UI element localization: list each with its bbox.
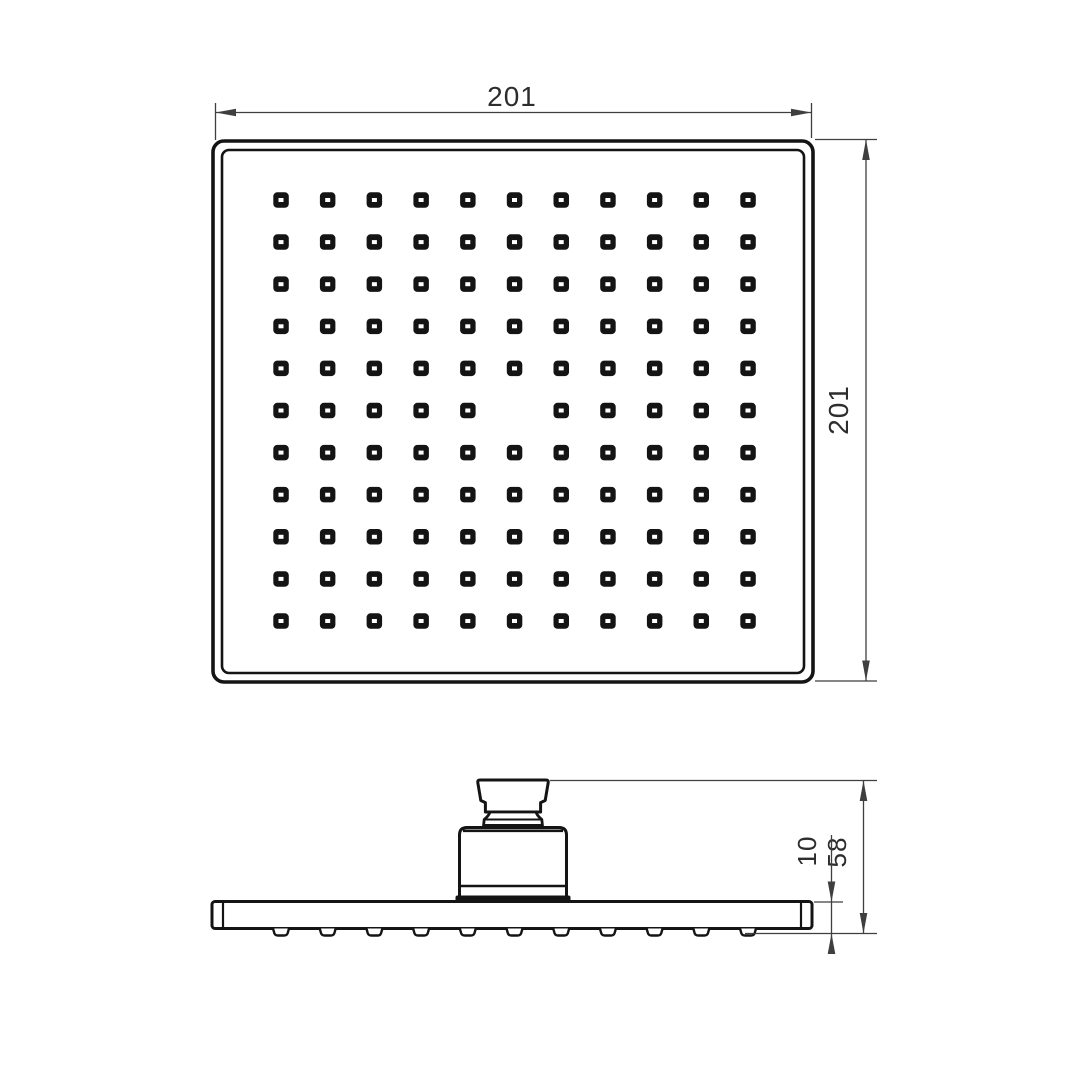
nozzle-hole	[559, 619, 564, 623]
nozzle-hole	[699, 409, 704, 413]
nozzle-hole	[559, 409, 564, 413]
nozzle-hole	[746, 577, 751, 581]
nozzle-hole	[559, 535, 564, 539]
arrowhead-left-icon	[216, 109, 237, 117]
nozzle-hole	[465, 409, 470, 413]
nozzle-hole	[325, 366, 330, 370]
nozzle-hole	[465, 535, 470, 539]
nozzle-hole	[699, 619, 704, 623]
nozzle-hole	[652, 198, 657, 202]
width-dimension-label: 201	[487, 81, 537, 112]
nozzle-hole	[372, 535, 377, 539]
nozzle-hole	[465, 366, 470, 370]
nozzle-hole	[652, 409, 657, 413]
top-view: 201 201	[213, 81, 877, 682]
nozzle-hole	[746, 409, 751, 413]
nozzle-hole	[325, 198, 330, 202]
technical-drawing-canvas: 201 201	[0, 0, 1066, 1066]
nozzle-hole	[325, 240, 330, 244]
nozzle-hole	[559, 282, 564, 286]
nozzle-hole	[419, 451, 424, 455]
nozzle-hole	[605, 619, 610, 623]
nozzle-hole	[652, 493, 657, 497]
nozzle-hole	[699, 535, 704, 539]
nozzle-hole	[419, 493, 424, 497]
spray-bump	[600, 929, 616, 936]
nozzle-hole	[512, 240, 517, 244]
nozzle-hole	[372, 451, 377, 455]
nozzle-hole	[465, 493, 470, 497]
arrowhead-up-icon	[828, 934, 836, 955]
nozzle-hole	[605, 409, 610, 413]
spray-bump	[647, 929, 663, 936]
nozzle-hole	[652, 282, 657, 286]
spray-bump	[366, 929, 382, 936]
arrowhead-right-icon	[791, 109, 812, 117]
spray-bump	[553, 929, 569, 936]
nozzle-hole	[372, 198, 377, 202]
nozzle-hole	[699, 493, 704, 497]
nozzle-hole	[699, 366, 704, 370]
spray-bump	[507, 929, 523, 936]
nozzle-hole	[746, 324, 751, 328]
nozzle-hole	[652, 366, 657, 370]
arrowhead-up-icon	[862, 140, 870, 161]
nozzle-hole	[325, 619, 330, 623]
nozzle-hole	[652, 535, 657, 539]
nozzle-hole	[512, 577, 517, 581]
arrowhead-down-icon	[860, 913, 868, 934]
nozzle-hole	[372, 282, 377, 286]
nozzle-hole	[746, 198, 751, 202]
nozzle-hole	[325, 577, 330, 581]
nozzle-hole	[279, 493, 284, 497]
spray-bump	[273, 929, 289, 936]
nozzle-hole	[559, 198, 564, 202]
nozzle-hole	[419, 409, 424, 413]
arrowhead-up-icon	[860, 781, 868, 802]
nozzle-hole	[419, 577, 424, 581]
connector-nut	[478, 780, 549, 812]
nozzle-hole	[465, 577, 470, 581]
nozzle-hole	[465, 451, 470, 455]
arrowhead-down-icon	[828, 882, 836, 903]
nozzle-hole	[746, 535, 751, 539]
nozzle-hole	[372, 240, 377, 244]
nozzle-hole	[279, 240, 284, 244]
nozzle-hole	[279, 409, 284, 413]
nozzle-hole	[279, 282, 284, 286]
nozzle-hole	[325, 493, 330, 497]
overall-height-label: 58	[822, 837, 852, 868]
nozzle-hole	[512, 493, 517, 497]
nozzle-hole	[465, 324, 470, 328]
nozzle-hole	[699, 282, 704, 286]
nozzle-hole	[512, 451, 517, 455]
nozzle-hole	[279, 366, 284, 370]
nozzle-hole	[746, 240, 751, 244]
width-dimension: 201	[216, 81, 812, 140]
nozzle-hole	[419, 619, 424, 623]
nozzle-hole	[325, 451, 330, 455]
nozzle-hole	[559, 240, 564, 244]
nozzle-hole	[512, 282, 517, 286]
nozzle-hole	[605, 366, 610, 370]
nozzle-hole	[512, 324, 517, 328]
nozzle-hole	[419, 535, 424, 539]
nozzle-hole	[559, 577, 564, 581]
nozzle-hole	[746, 451, 751, 455]
nozzle-hole	[419, 324, 424, 328]
nozzle-hole	[465, 198, 470, 202]
nozzle-hole	[279, 619, 284, 623]
nozzle-hole	[512, 535, 517, 539]
nozzle-hole	[559, 493, 564, 497]
nozzle-hole	[465, 282, 470, 286]
nozzle-hole	[652, 451, 657, 455]
nozzle-hole	[559, 451, 564, 455]
spray-bump	[460, 929, 476, 936]
plate-thickness-label: 10	[792, 836, 822, 867]
nozzle-hole	[652, 577, 657, 581]
arrowhead-down-icon	[862, 661, 870, 682]
nozzle-hole	[419, 240, 424, 244]
spray-bump	[740, 929, 756, 936]
nozzle-hole	[279, 535, 284, 539]
nozzle-hole	[279, 451, 284, 455]
nozzle-hole	[605, 577, 610, 581]
nozzle-hole	[605, 198, 610, 202]
nozzle-hole	[746, 619, 751, 623]
nozzle-hole	[699, 324, 704, 328]
spray-bump	[320, 929, 336, 936]
nozzle-hole	[279, 324, 284, 328]
nozzle-hole	[372, 493, 377, 497]
height-dimension-label: 201	[823, 385, 854, 435]
nozzle-hole	[699, 198, 704, 202]
shower-head-drawing: 201 201	[0, 0, 1066, 1066]
nozzle-hole	[325, 409, 330, 413]
nozzle-hole	[279, 198, 284, 202]
nozzle-hole	[325, 324, 330, 328]
top-view-inner-square	[222, 150, 804, 673]
nozzle-hole	[605, 535, 610, 539]
nozzle-hole	[372, 366, 377, 370]
nozzle-hole	[465, 240, 470, 244]
nozzle-hole	[372, 619, 377, 623]
nozzle-hole	[465, 619, 470, 623]
nozzle-hole	[746, 366, 751, 370]
nozzle-hole	[325, 282, 330, 286]
nozzle-hole	[512, 366, 517, 370]
nozzle-hole	[512, 198, 517, 202]
nozzle-hole	[605, 240, 610, 244]
spray-bump	[413, 929, 429, 936]
nozzle-hole	[372, 577, 377, 581]
nozzle-hole	[605, 282, 610, 286]
nozzle-hole	[605, 324, 610, 328]
nozzle-hole	[652, 619, 657, 623]
spray-bump	[693, 929, 709, 936]
nozzle-hole	[699, 240, 704, 244]
nozzle-hole	[652, 324, 657, 328]
nozzle-hole	[512, 619, 517, 623]
nozzle-hole	[699, 577, 704, 581]
nozzle-hole	[372, 324, 377, 328]
nozzle-hole	[372, 409, 377, 413]
plate-profile	[212, 902, 812, 929]
nozzle-hole	[419, 282, 424, 286]
nozzle-hole	[279, 577, 284, 581]
side-view: 58 10	[212, 780, 877, 954]
nozzle-hole	[746, 493, 751, 497]
nozzle-hole	[746, 282, 751, 286]
nozzle-hole	[699, 451, 704, 455]
nozzle-hole	[419, 198, 424, 202]
nozzle-hole	[605, 493, 610, 497]
nozzle-hole	[325, 535, 330, 539]
height-dimension: 201	[815, 140, 877, 682]
nozzle-hole	[605, 451, 610, 455]
nozzle-hole	[559, 324, 564, 328]
nozzle-hole	[559, 366, 564, 370]
nozzle-hole	[419, 366, 424, 370]
nozzle-hole	[652, 240, 657, 244]
